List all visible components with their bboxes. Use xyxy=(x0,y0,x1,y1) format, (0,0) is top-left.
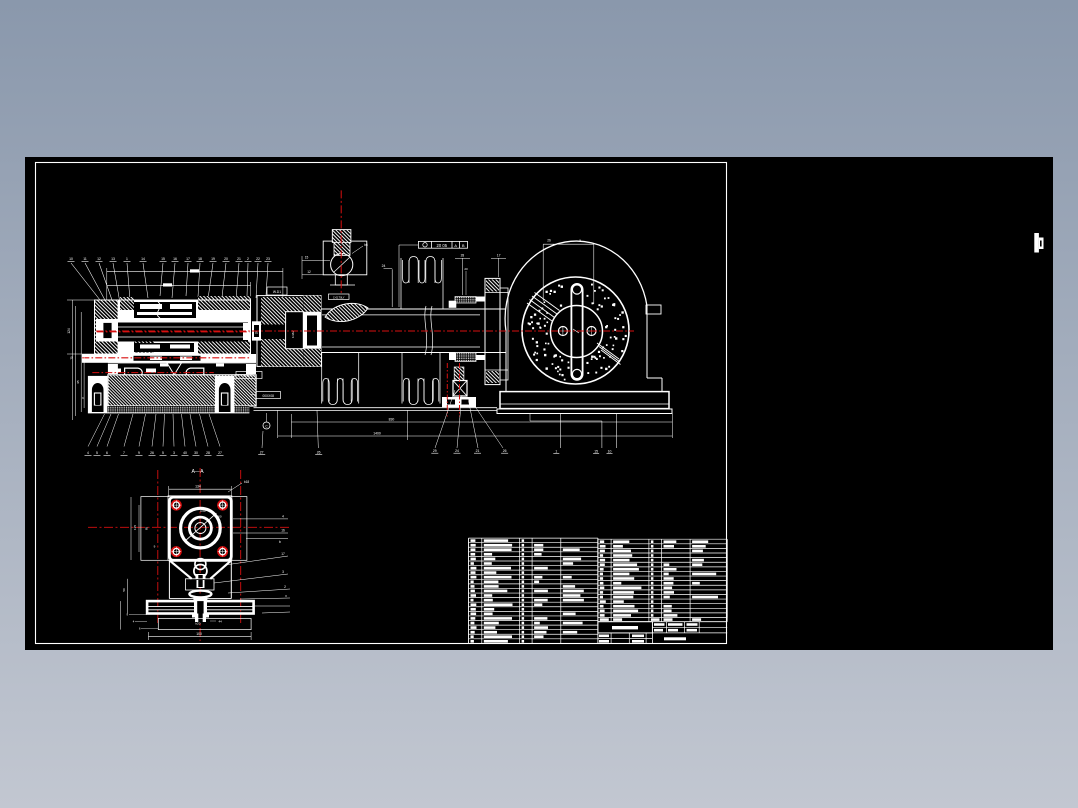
svg-text:1400: 1400 xyxy=(373,432,381,436)
svg-text:24: 24 xyxy=(382,264,386,268)
svg-text:10: 10 xyxy=(69,257,73,261)
svg-text:1: 1 xyxy=(126,257,128,261)
svg-text:11: 11 xyxy=(83,257,87,261)
svg-text:26: 26 xyxy=(503,449,507,453)
svg-text:24: 24 xyxy=(455,449,459,453)
svg-text:b: b xyxy=(279,540,281,544)
svg-text:C-01T0LY: C-01T0LY xyxy=(333,295,345,299)
svg-text:A: A xyxy=(454,244,457,248)
svg-text:1: 1 xyxy=(555,450,557,454)
svg-text:17: 17 xyxy=(281,552,285,556)
svg-text:19: 19 xyxy=(211,257,215,261)
svg-text:16: 16 xyxy=(281,529,285,533)
svg-text:75: 75 xyxy=(70,356,74,360)
svg-text:40: 40 xyxy=(183,451,187,455)
svg-text:10: 10 xyxy=(608,450,612,454)
svg-text:13: 13 xyxy=(111,257,115,261)
svg-text:2: 2 xyxy=(247,257,249,261)
svg-text:27: 27 xyxy=(260,451,264,455)
svg-text:00XX08: 00XX08 xyxy=(263,394,275,398)
svg-text:44: 44 xyxy=(219,620,223,624)
svg-text:5: 5 xyxy=(162,451,164,455)
svg-text:27: 27 xyxy=(218,451,222,455)
svg-text:5: 5 xyxy=(96,451,98,455)
svg-text:22: 22 xyxy=(198,559,202,563)
svg-text:4: 4 xyxy=(282,515,284,519)
svg-text:26: 26 xyxy=(317,451,321,455)
svg-text:17: 17 xyxy=(186,257,190,261)
svg-text:17: 17 xyxy=(497,254,501,258)
svg-text:830: 830 xyxy=(389,418,395,422)
svg-text:28: 28 xyxy=(206,451,210,455)
svg-text:6: 6 xyxy=(106,451,108,455)
svg-text:16: 16 xyxy=(173,257,177,261)
svg-text:26: 26 xyxy=(150,451,154,455)
svg-text:b30: b30 xyxy=(200,509,205,513)
svg-text:15: 15 xyxy=(305,256,309,260)
svg-text:3: 3 xyxy=(173,451,175,455)
svg-text:135: 135 xyxy=(133,525,137,530)
svg-text:15: 15 xyxy=(594,450,598,454)
svg-text:14: 14 xyxy=(141,257,145,261)
svg-text:100: 100 xyxy=(196,632,202,636)
svg-text:b6: b6 xyxy=(364,243,368,247)
svg-text:20 05: 20 05 xyxy=(437,243,448,248)
svg-text:2: 2 xyxy=(284,585,286,589)
svg-text:b20: b20 xyxy=(195,622,200,626)
svg-text:134: 134 xyxy=(195,485,201,489)
svg-text:21: 21 xyxy=(237,257,241,261)
svg-text:124: 124 xyxy=(67,328,71,334)
svg-text:85: 85 xyxy=(145,527,149,531)
svg-text:12: 12 xyxy=(97,257,101,261)
svg-text:A—A: A—A xyxy=(191,469,204,475)
svg-text:W.D1: W.D1 xyxy=(273,290,281,294)
svg-text:4: 4 xyxy=(87,451,89,455)
svg-text:28: 28 xyxy=(461,254,465,258)
svg-text:20: 20 xyxy=(464,267,468,271)
svg-text:30: 30 xyxy=(194,451,198,455)
svg-text:a: a xyxy=(579,239,581,243)
svg-text:15: 15 xyxy=(161,257,165,261)
svg-text:b60: b60 xyxy=(216,515,221,519)
svg-text:20: 20 xyxy=(224,257,228,261)
svg-text:12: 12 xyxy=(307,270,311,274)
svg-text:3: 3 xyxy=(282,570,284,574)
svg-text:b18: b18 xyxy=(244,480,250,484)
svg-text:95: 95 xyxy=(76,380,80,384)
svg-text:9: 9 xyxy=(138,451,140,455)
svg-text:22: 22 xyxy=(256,257,260,261)
svg-text:B: B xyxy=(462,244,465,248)
svg-text:50: 50 xyxy=(122,588,126,592)
svg-text:29: 29 xyxy=(433,449,437,453)
svg-text:23: 23 xyxy=(266,257,270,261)
svg-text:7: 7 xyxy=(123,451,125,455)
svg-text:21: 21 xyxy=(476,449,480,453)
svg-text:26: 26 xyxy=(547,239,551,243)
svg-text:18: 18 xyxy=(198,257,202,261)
